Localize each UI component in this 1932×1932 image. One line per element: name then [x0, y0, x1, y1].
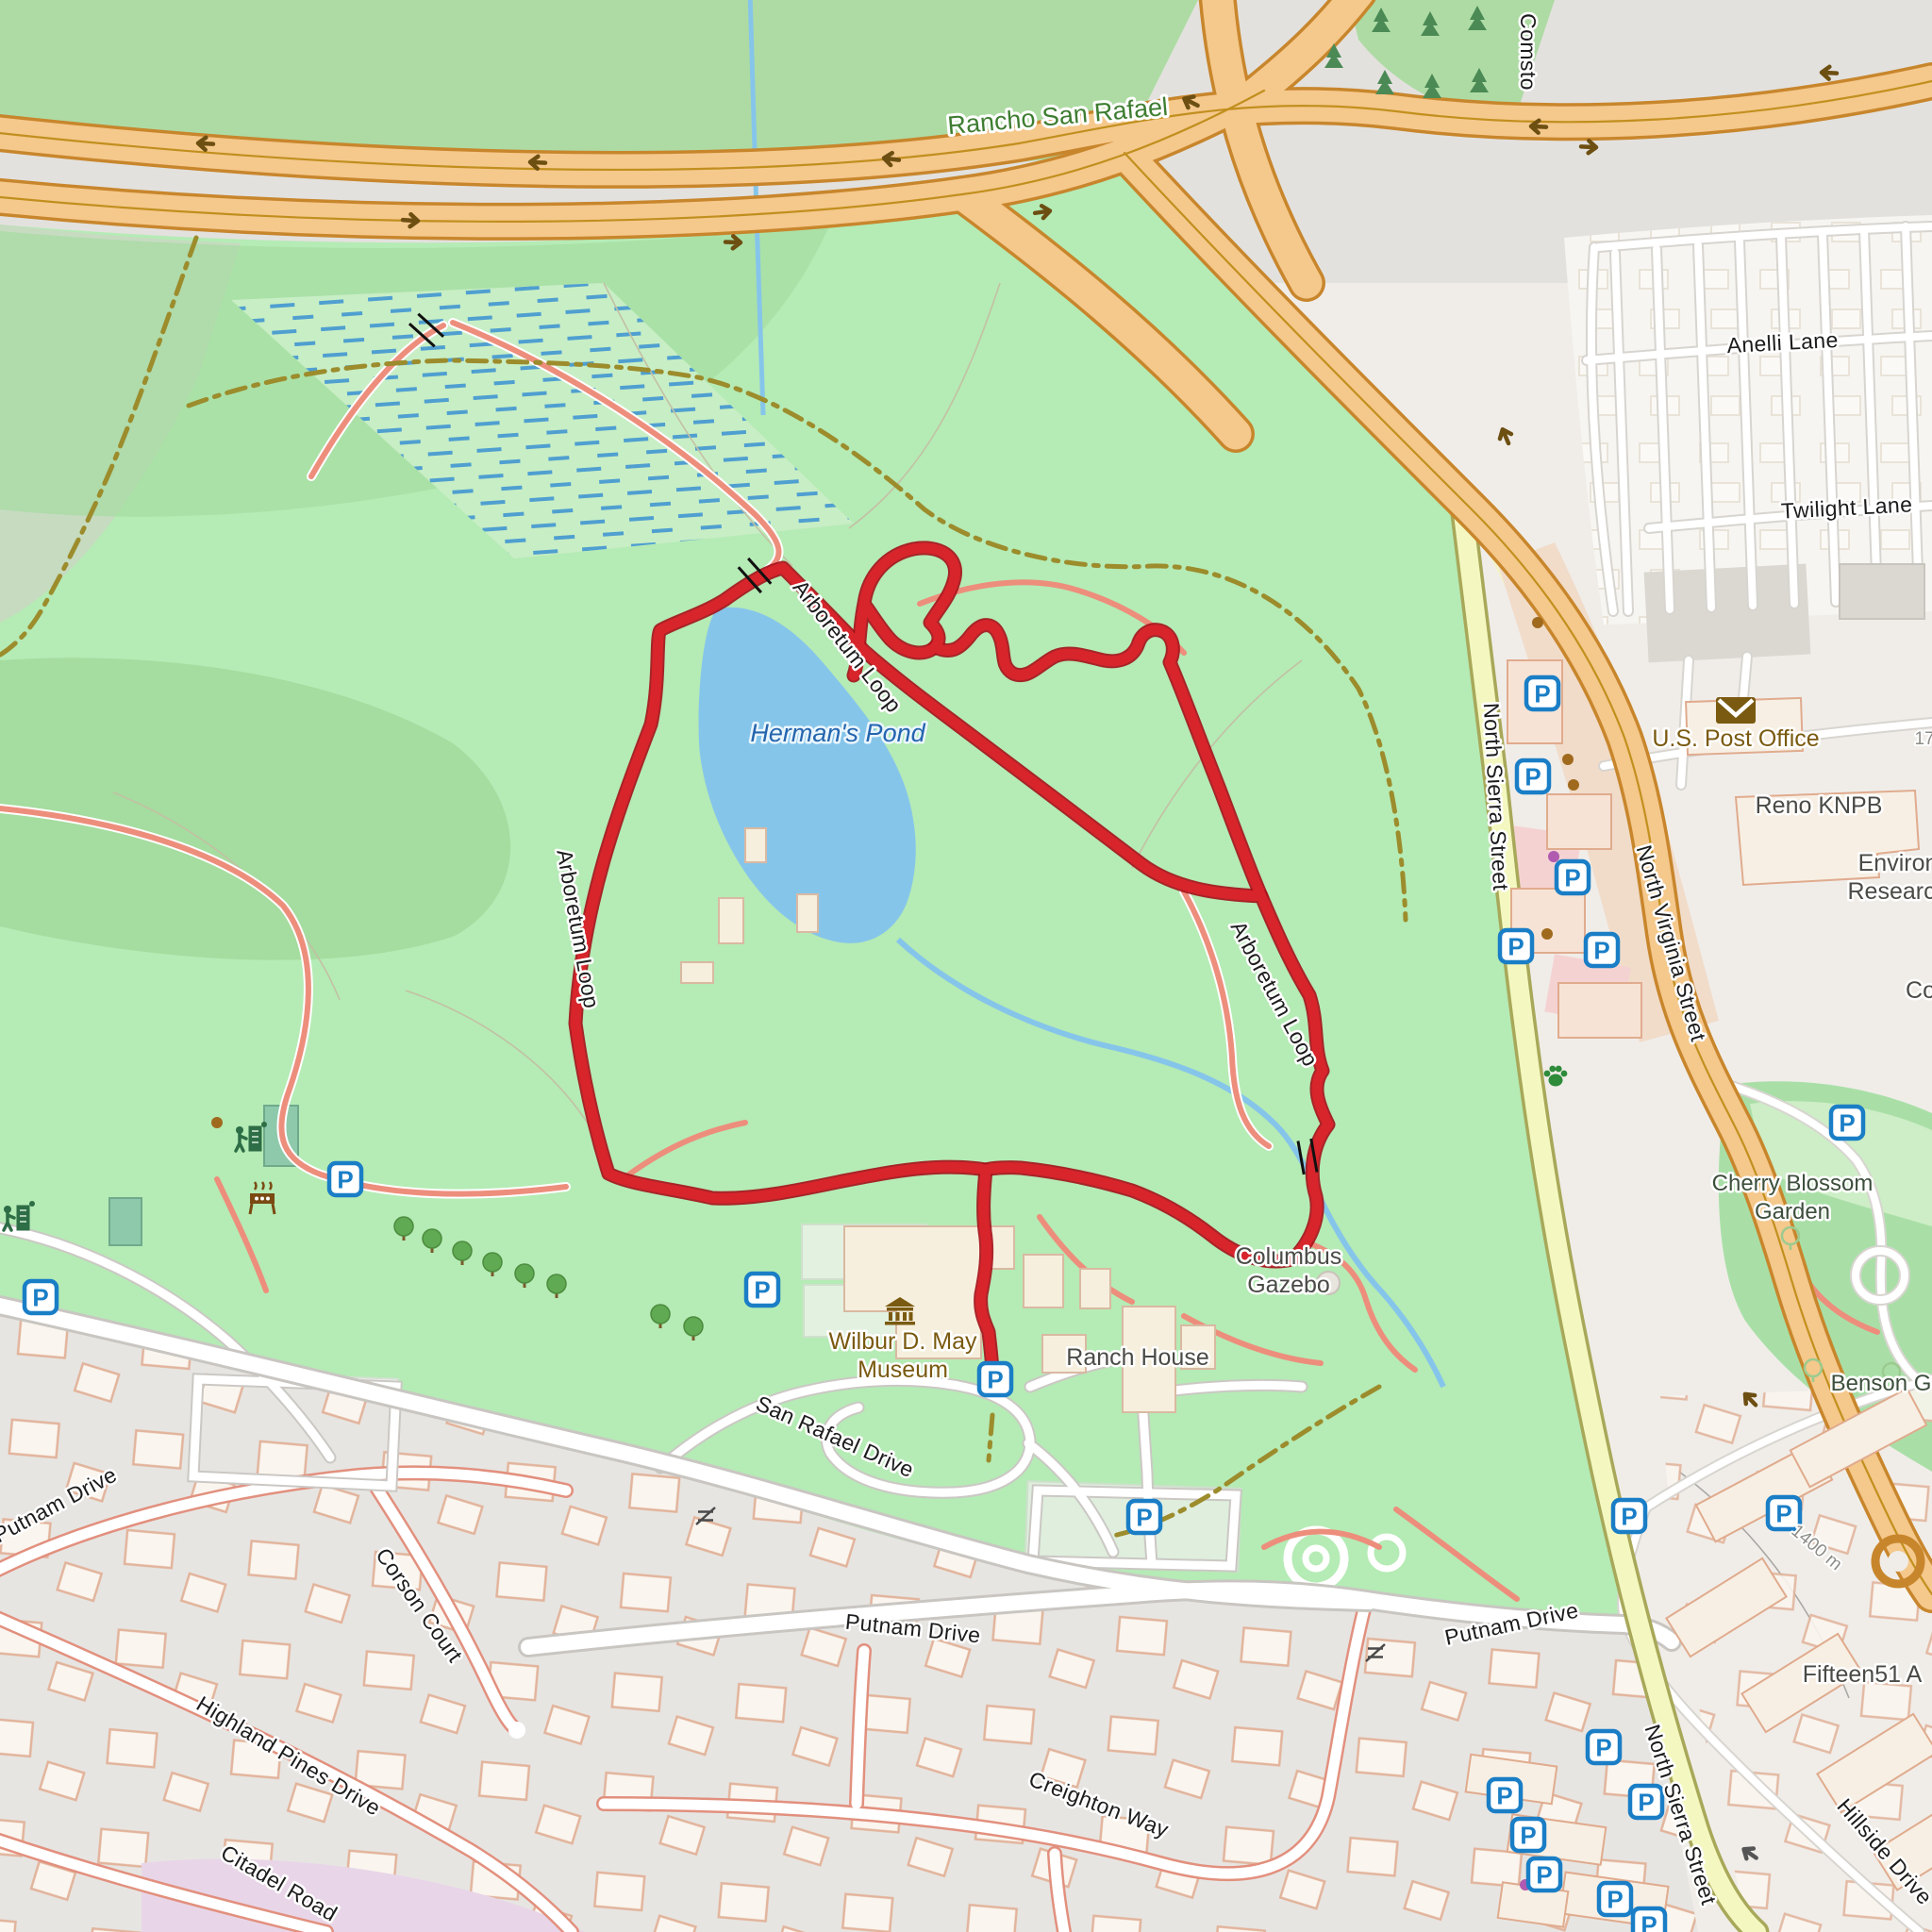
parking-icon [1517, 760, 1549, 792]
poi-dot-icon [1568, 779, 1579, 791]
parking-icon [1526, 677, 1558, 709]
parking-icon [1557, 861, 1589, 893]
label-comstock: Comsto [1516, 13, 1541, 91]
poi-dot-icon [1541, 928, 1553, 940]
parking-icon [1599, 1883, 1631, 1915]
parking-icon [1768, 1497, 1800, 1529]
parking-icon [1613, 1500, 1645, 1532]
parking-icon [979, 1363, 1011, 1395]
parking-icon [746, 1274, 778, 1306]
label-benson-gardens: Benson G [1831, 1371, 1932, 1396]
parking-icon [329, 1163, 361, 1195]
post-office-icon [1716, 697, 1756, 724]
parking-icon [1528, 1858, 1560, 1890]
parking-icon [1630, 1786, 1662, 1818]
parking-icon [1128, 1501, 1160, 1533]
label-hermans-pond: Herman's Pond [750, 719, 925, 747]
label-us-post-office: U.S. Post Office [1652, 725, 1819, 752]
label-fifteen51-apartments: Fifteen51 A [1803, 1661, 1923, 1688]
parking-icon [25, 1281, 57, 1313]
parking-icon [1489, 1779, 1521, 1811]
poi-dot-icon [1562, 754, 1574, 765]
label-housenumber-17: 17 [1914, 729, 1932, 749]
parking-icon [1633, 1908, 1665, 1932]
map-canvas[interactable]: P [0, 0, 1932, 1932]
poi-dot-icon [1548, 851, 1559, 862]
parking-icon [1500, 930, 1532, 962]
map-container: P [0, 0, 1932, 1932]
poi-dot-icon [211, 1117, 223, 1128]
label-reno-knpb: Reno KNPB [1756, 792, 1883, 819]
poi-dot-icon [1532, 617, 1543, 628]
label-ranch-house: Ranch House [1066, 1344, 1208, 1371]
parking-icon [1512, 1819, 1544, 1851]
parking-icon [1586, 934, 1618, 966]
parking-icon [1831, 1107, 1863, 1139]
parking-icon [1588, 1731, 1620, 1763]
label-co-truncated: Co [1906, 977, 1932, 1004]
